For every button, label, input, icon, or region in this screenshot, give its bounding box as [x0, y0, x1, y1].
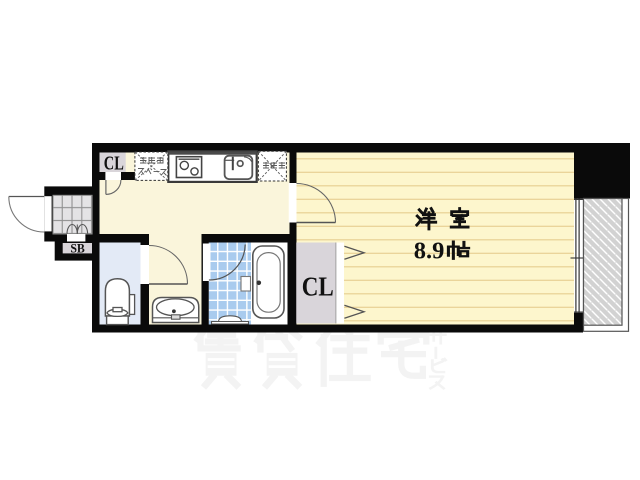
- svg-text:CL: CL: [104, 153, 124, 174]
- svg-text:8.9: 8.9: [414, 238, 445, 265]
- svg-text:CL: CL: [302, 271, 334, 302]
- svg-text:SB: SB: [70, 241, 85, 255]
